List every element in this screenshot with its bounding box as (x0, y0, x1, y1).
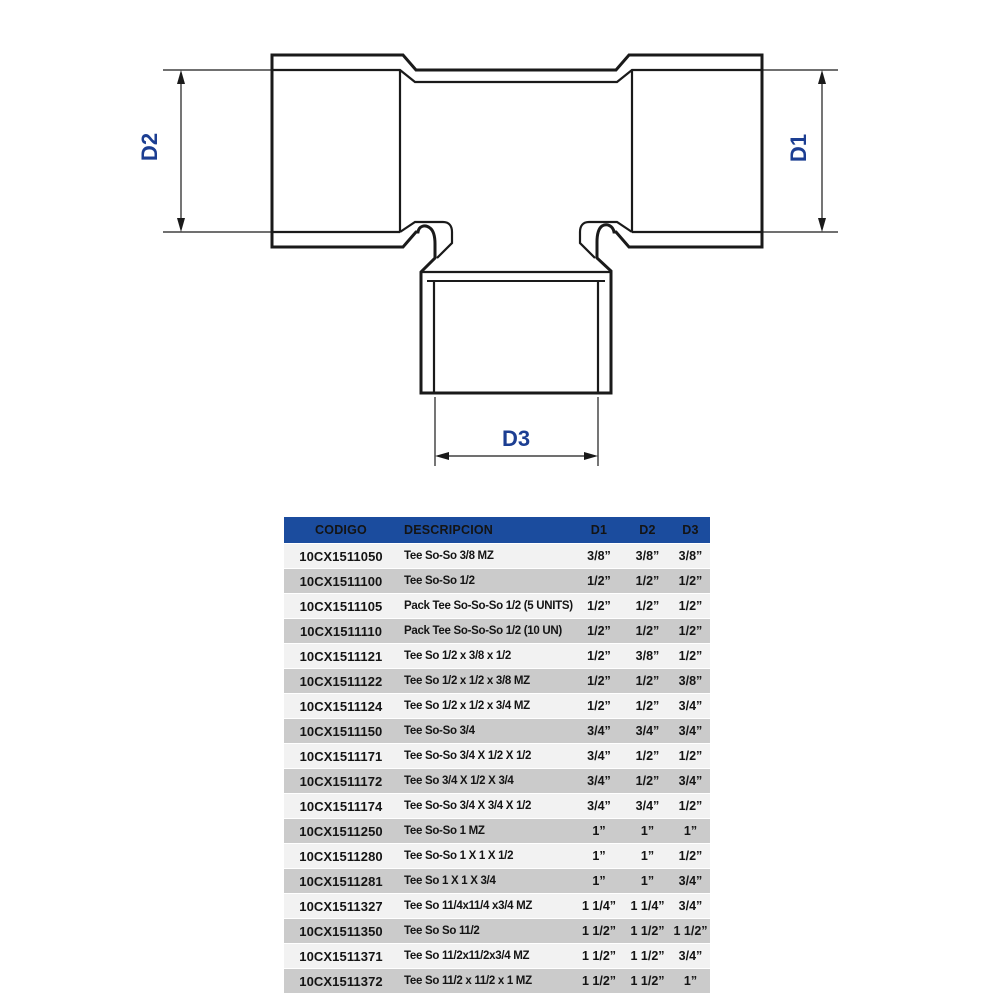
d3-cell: 1/2” (671, 799, 710, 813)
d1-cell: 1/2” (574, 574, 624, 588)
d3-cell: 1/2” (671, 749, 710, 763)
catalog-page: D2 D1 D3 CODIGO DESCRIPCION D1 D2 D3 10C… (0, 0, 1000, 1000)
desc-cell: Tee So-So 1/2 (398, 575, 574, 587)
d1-arrow-down (818, 218, 826, 232)
tee-fitting-diagram: D2 D1 D3 (0, 0, 1000, 505)
table-row: 10CX1511281Tee So 1 X 1 X 3/41”1”3/4” (284, 869, 710, 894)
d1-cell: 1” (574, 824, 624, 838)
code-cell: 10CX1511121 (284, 649, 398, 664)
d2-cell: 1/2” (624, 574, 671, 588)
d1-cell: 3/4” (574, 774, 624, 788)
d1-cell: 1 1/2” (574, 974, 624, 988)
d3-cell: 1 1/2” (671, 924, 710, 938)
d3-cell: 3/4” (671, 774, 710, 788)
tee-outer-contour (272, 55, 762, 393)
d2-label: D2 (137, 133, 162, 161)
d1-cell: 1 1/2” (574, 924, 624, 938)
d2-arrow-down (177, 218, 185, 232)
d2-cell: 1” (624, 849, 671, 863)
desc-cell: Tee So 1 X 1 X 3/4 (398, 875, 574, 887)
table-row: 10CX1511105Pack Tee So-So-So 1/2 (5 UNIT… (284, 594, 710, 619)
code-cell: 10CX1511124 (284, 699, 398, 714)
d3-cell: 3/4” (671, 874, 710, 888)
d1-cell: 1/2” (574, 674, 624, 688)
table-row: 10CX1511280Tee So-So 1 X 1 X 1/21”1”1/2” (284, 844, 710, 869)
d3-cell: 1/2” (671, 649, 710, 663)
d3-cell: 3/4” (671, 699, 710, 713)
d2-cell: 1/2” (624, 599, 671, 613)
desc-cell: Tee So So 11/2 (398, 925, 574, 937)
d3-cell: 1/2” (671, 599, 710, 613)
header-d1: D1 (574, 523, 624, 537)
d2-cell: 1 1/2” (624, 949, 671, 963)
table-row: 10CX1511122Tee So 1/2 x 1/2 x 3/8 MZ1/2”… (284, 669, 710, 694)
d2-cell: 3/4” (624, 799, 671, 813)
d3-label: D3 (502, 426, 530, 451)
d3-cell: 1” (671, 824, 710, 838)
d2-arrow-up (177, 70, 185, 84)
code-cell: 10CX1511250 (284, 824, 398, 839)
table-header-row: CODIGO DESCRIPCION D1 D2 D3 (284, 517, 710, 544)
d2-cell: 1 1/2” (624, 974, 671, 988)
desc-cell: Tee So-So 3/4 X 3/4 X 1/2 (398, 800, 574, 812)
d1-label: D1 (786, 134, 811, 162)
d2-cell: 1/2” (624, 749, 671, 763)
d3-cell: 3/8” (671, 674, 710, 688)
d1-cell: 1” (574, 849, 624, 863)
desc-cell: Pack Tee So-So-So 1/2 (10 UN) (398, 625, 574, 637)
d1-cell: 3/4” (574, 749, 624, 763)
d2-cell: 1/2” (624, 624, 671, 638)
desc-cell: Tee So 11/4x11/4 x3/4 MZ (398, 900, 574, 912)
d1-arrow-up (818, 70, 826, 84)
desc-cell: Tee So 3/4 X 1/2 X 3/4 (398, 775, 574, 787)
d3-cell: 3/4” (671, 899, 710, 913)
d1-cell: 3/4” (574, 724, 624, 738)
tee-inner-top-line (272, 70, 762, 82)
desc-cell: Tee So-So 3/4 (398, 725, 574, 737)
header-codigo: CODIGO (284, 523, 398, 537)
d2-cell: 1/2” (624, 774, 671, 788)
table-row: 10CX1511110Pack Tee So-So-So 1/2 (10 UN)… (284, 619, 710, 644)
d3-cell: 1/2” (671, 849, 710, 863)
table-row: 10CX1511350Tee So So 11/21 1/2”1 1/2”1 1… (284, 919, 710, 944)
d1-cell: 1 1/2” (574, 949, 624, 963)
d3-cell: 1/2” (671, 624, 710, 638)
code-cell: 10CX1511100 (284, 574, 398, 589)
d1-cell: 1/2” (574, 649, 624, 663)
table-body: 10CX1511050Tee So-So 3/8 MZ3/8”3/8”3/8”1… (284, 544, 710, 994)
table-row: 10CX1511174Tee So-So 3/4 X 3/4 X 1/23/4”… (284, 794, 710, 819)
d1-cell: 3/4” (574, 799, 624, 813)
desc-cell: Tee So 1/2 x 1/2 x 3/8 MZ (398, 675, 574, 687)
desc-cell: Tee So 11/2x11/2x3/4 MZ (398, 950, 574, 962)
table-row: 10CX1511150Tee So-So 3/43/4”3/4”3/4” (284, 719, 710, 744)
desc-cell: Tee So 11/2 x 11/2 x 1 MZ (398, 975, 574, 987)
table-row: 10CX1511250Tee So-So 1 MZ1”1”1” (284, 819, 710, 844)
table-row: 10CX1511172Tee So 3/4 X 1/2 X 3/43/4”1/2… (284, 769, 710, 794)
d1-cell: 1/2” (574, 624, 624, 638)
d2-cell: 1 1/2” (624, 924, 671, 938)
table-row: 10CX1511171Tee So-So 3/4 X 1/2 X 1/23/4”… (284, 744, 710, 769)
d2-cell: 1 1/4” (624, 899, 671, 913)
table-row: 10CX1511124Tee So 1/2 x 1/2 x 3/4 MZ1/2”… (284, 694, 710, 719)
d1-cell: 1” (574, 874, 624, 888)
code-cell: 10CX1511122 (284, 674, 398, 689)
desc-cell: Tee So-So 3/8 MZ (398, 550, 574, 562)
d2-cell: 1/2” (624, 674, 671, 688)
header-d2: D2 (624, 523, 671, 537)
code-cell: 10CX1511372 (284, 974, 398, 989)
code-cell: 10CX1511110 (284, 624, 398, 639)
d2-cell: 1/2” (624, 699, 671, 713)
desc-cell: Tee So-So 1 MZ (398, 825, 574, 837)
d1-cell: 1/2” (574, 699, 624, 713)
d3-cell: 3/8” (671, 549, 710, 563)
d2-cell: 1” (624, 824, 671, 838)
code-cell: 10CX1511171 (284, 749, 398, 764)
d1-cell: 1 1/4” (574, 899, 624, 913)
desc-cell: Tee So-So 1 X 1 X 1/2 (398, 850, 574, 862)
d2-cell: 3/4” (624, 724, 671, 738)
header-descripcion: DESCRIPCION (398, 523, 574, 537)
code-cell: 10CX1511280 (284, 849, 398, 864)
d3-cell: 1” (671, 974, 710, 988)
table-row: 10CX1511327Tee So 11/4x11/4 x3/4 MZ1 1/4… (284, 894, 710, 919)
code-cell: 10CX1511172 (284, 774, 398, 789)
table-row: 10CX1511050Tee So-So 3/8 MZ3/8”3/8”3/8” (284, 544, 710, 569)
d2-cell: 1” (624, 874, 671, 888)
table-row: 10CX1511372Tee So 11/2 x 11/2 x 1 MZ1 1/… (284, 969, 710, 994)
table-row: 10CX1511100Tee So-So 1/21/2”1/2”1/2” (284, 569, 710, 594)
code-cell: 10CX1511371 (284, 949, 398, 964)
d1-cell: 3/8” (574, 549, 624, 563)
code-cell: 10CX1511105 (284, 599, 398, 614)
d2-cell: 3/8” (624, 549, 671, 563)
code-cell: 10CX1511174 (284, 799, 398, 814)
table-row: 10CX1511121Tee So 1/2 x 3/8 x 1/21/2”3/8… (284, 644, 710, 669)
desc-cell: Tee So-So 3/4 X 1/2 X 1/2 (398, 750, 574, 762)
code-cell: 10CX1511150 (284, 724, 398, 739)
table-row: 10CX1511371Tee So 11/2x11/2x3/4 MZ1 1/2”… (284, 944, 710, 969)
code-cell: 10CX1511050 (284, 549, 398, 564)
product-spec-table: CODIGO DESCRIPCION D1 D2 D3 10CX1511050T… (284, 517, 710, 994)
d3-arrow-right (584, 452, 598, 460)
header-d3: D3 (671, 523, 710, 537)
extension-lines (163, 70, 838, 466)
d3-arrow-left (435, 452, 449, 460)
desc-cell: Tee So 1/2 x 1/2 x 3/4 MZ (398, 700, 574, 712)
d3-cell: 1/2” (671, 574, 710, 588)
code-cell: 10CX1511327 (284, 899, 398, 914)
d3-cell: 3/4” (671, 724, 710, 738)
d1-cell: 1/2” (574, 599, 624, 613)
desc-cell: Pack Tee So-So-So 1/2 (5 UNITS) (398, 600, 574, 612)
code-cell: 10CX1511350 (284, 924, 398, 939)
code-cell: 10CX1511281 (284, 874, 398, 889)
d2-cell: 3/8” (624, 649, 671, 663)
d3-cell: 3/4” (671, 949, 710, 963)
desc-cell: Tee So 1/2 x 3/8 x 1/2 (398, 650, 574, 662)
